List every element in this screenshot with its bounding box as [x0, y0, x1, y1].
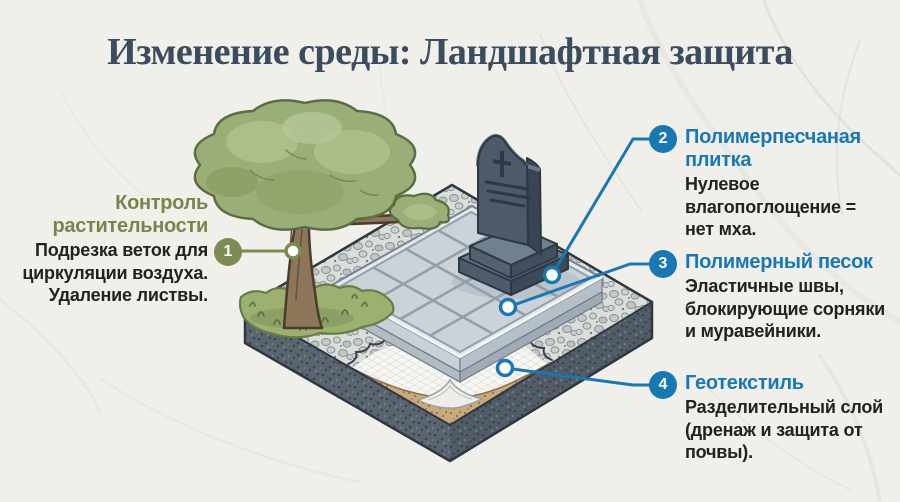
- headstone: [478, 136, 541, 254]
- text-line: Нулевое: [685, 173, 895, 196]
- text-line: Контроль: [6, 192, 208, 215]
- callout-tile-title: Полимерпесчаная плитка: [685, 126, 895, 172]
- callout-marker-1: 1: [214, 238, 242, 266]
- text-line: плитка: [685, 149, 895, 172]
- text-line: растительности: [6, 215, 208, 238]
- callout-dot-3: [501, 300, 516, 315]
- text-line: Геотекстиль: [685, 372, 895, 395]
- callout-vegetation-title: Контроль растительности: [6, 192, 208, 238]
- callout-tile-body: Нулевое влагопоглощение = нет мха.: [685, 173, 895, 241]
- text-line: и муравейники.: [685, 320, 895, 343]
- callout-marker-2: 2: [649, 125, 677, 153]
- callout-sand-body: Эластичные швы, блокирующие сорняки и му…: [685, 275, 895, 343]
- headstone-side: [527, 158, 541, 254]
- callout-marker-3: 3: [649, 250, 677, 278]
- text-line: нет мха.: [685, 218, 895, 241]
- callout-geotextile-title: Геотекстиль: [685, 372, 895, 395]
- text-line: Удаление листвы.: [6, 284, 208, 307]
- callout-vegetation-body: Подрезка веток для циркуляции воздуха. У…: [6, 239, 208, 307]
- callout-tile: Полимерпесчаная плитка Нулевое влагопогл…: [685, 126, 895, 241]
- infographic-page: Изменение среды: Ландшафтная защита Конт…: [0, 0, 900, 502]
- callout-sand: Полимерный песок Эластичные швы, блокиру…: [685, 251, 895, 343]
- callout-sand-title: Полимерный песок: [685, 251, 895, 274]
- text-line: Эластичные швы,: [685, 275, 895, 298]
- text-line: Полимерпесчаная: [685, 126, 895, 149]
- callout-dot-1: [286, 244, 300, 258]
- callout-vegetation: Контроль растительности Подрезка веток д…: [6, 192, 208, 307]
- text-line: Подрезка веток для: [6, 239, 208, 262]
- text-line: циркуляции воздуха.: [6, 262, 208, 285]
- callout-geotextile: Геотекстиль Разделительный слой (дренаж …: [685, 372, 895, 464]
- text-line: влагопоглощение =: [685, 196, 895, 219]
- callout-geotextile-body: Разделительный слой (дренаж и защита от …: [685, 396, 895, 464]
- text-line: Разделительный слой: [685, 396, 895, 419]
- callout-dot-2: [545, 268, 560, 283]
- callout-marker-4: 4: [649, 371, 677, 399]
- callout-dot-4: [498, 361, 513, 376]
- text-line: (дренаж и защита от: [685, 419, 895, 442]
- cemetery-plot-illustration: [195, 100, 655, 461]
- text-line: Полимерный песок: [685, 251, 895, 274]
- page-title: Изменение среды: Ландшафтная защита: [0, 30, 900, 74]
- text-line: блокирующие сорняки: [685, 298, 895, 321]
- text-line: почвы).: [685, 441, 895, 464]
